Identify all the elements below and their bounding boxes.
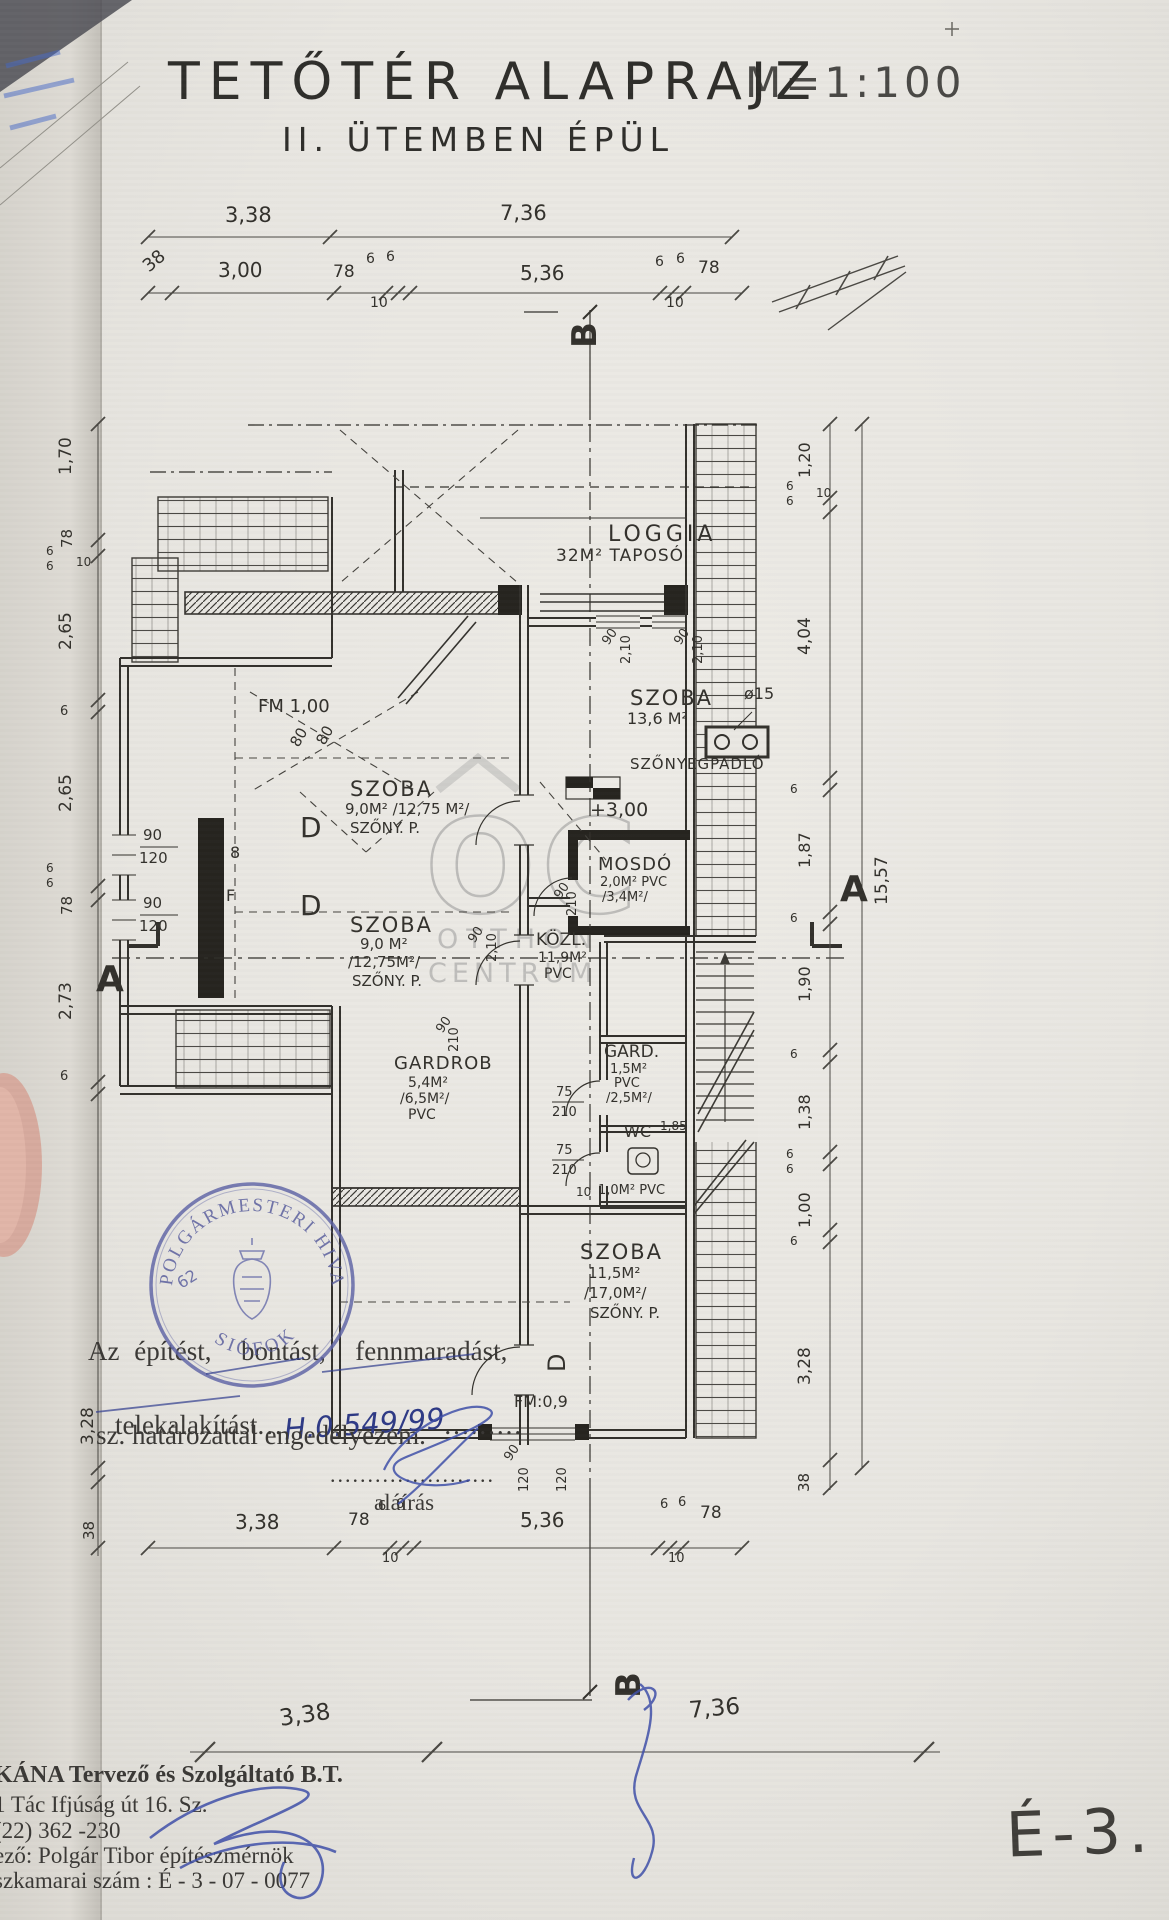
dim-gard-210: 210 [552, 1106, 577, 1119]
dim-left-6d: 6 [46, 862, 54, 874]
dim-left-78a: 78 [60, 529, 75, 548]
approval-line1: Az építést, bontást, fennmaradást, [88, 1336, 507, 1367]
dim-bot1-78b: 78 [700, 1505, 722, 1522]
dim-left-6f: 6 [60, 1070, 68, 1083]
approval-line3: sz. határozattal engedélyezem. [96, 1420, 426, 1451]
dim-top-338: 3,38 [225, 205, 272, 226]
dim-left-265a: 2,65 [58, 612, 75, 650]
dim-bot1-338: 3,38 [235, 1512, 280, 1532]
page-title: TETŐTÉR ALAPRAJZ [168, 52, 820, 112]
signature-label: aláírás [374, 1490, 434, 1516]
dim-left-6c: 6 [60, 705, 68, 718]
dim-left-6e: 6 [46, 877, 54, 889]
label-sym-8: 8 [230, 845, 240, 861]
dim-top2-38: 38 [140, 247, 169, 276]
dim-right-190: 1,90 [797, 966, 813, 1002]
label-door-d3: D [545, 1354, 569, 1372]
dim-top2-536: 5,36 [520, 263, 565, 283]
room-szoba-w1-area: 9,0M² /12,75 M²/ [345, 802, 469, 817]
dim-top2-6c: 6 [655, 255, 664, 269]
room-szoba-ne-floor: SZŐNYEGPADLÓ [630, 757, 765, 772]
label-sym-f: F [226, 888, 235, 904]
room-gard-area: 1,5M² [610, 1063, 647, 1076]
room-gardrob: GARDROB [394, 1055, 493, 1073]
room-mosdo-area2: /3,4M²/ [602, 891, 648, 904]
dim-top2-6d: 6 [676, 252, 685, 266]
page-title-scale: M=1:100 [745, 58, 965, 107]
dim-left-78b: 78 [60, 896, 75, 915]
room-szoba-w2: SZOBA [350, 915, 433, 936]
dim-door-90: 90 [466, 924, 486, 945]
room-kozl: KÖZL. [536, 932, 586, 949]
dim-w-90b: 90 [143, 896, 162, 911]
dim-right-6d: 6 [790, 912, 798, 924]
dim-s-120b: 120 [556, 1467, 569, 1492]
company-designer: ező: Polgár Tibor építészmérnök [0, 1843, 294, 1869]
company-name: KÁNA Tervező és Szolgáltató B.T. [0, 1762, 343, 1789]
dim-left-273: 2,73 [58, 982, 75, 1020]
label-fm100: FM 1,00 [258, 698, 330, 716]
dim-right-328: 3,28 [797, 1347, 814, 1385]
room-szoba-w2-area: 9,0 M² [360, 937, 408, 952]
dim-mosdo-210: 210 [566, 891, 579, 916]
page-subtitle: II. ÜTEMBEN ÉPÜL [282, 120, 674, 159]
dim-gardrob-210: 210 [448, 1027, 461, 1052]
room-kozl-floor: PVC [544, 967, 572, 981]
approval-line2-dots2: ......... [444, 1410, 523, 1440]
dim-win-90a: 90 [600, 626, 620, 647]
dim-bot1-10a: 10 [382, 1552, 399, 1565]
dim-wc-210: 210 [552, 1164, 577, 1177]
room-szoba-w1-floor: SZŐNY. P. [350, 821, 420, 836]
room-loggia: LOGGIA [608, 524, 716, 546]
dim-bot1-6d: 6 [678, 1496, 686, 1509]
dim-bot1-6c: 6 [660, 1498, 668, 1511]
dim-bot1-536: 5,36 [520, 1510, 565, 1530]
dim-top2-10b: 10 [666, 296, 684, 310]
dim-top-736: 7,36 [500, 203, 547, 224]
dim-wc-10: 10 [576, 1186, 591, 1198]
room-gard-floor: PVC [614, 1077, 640, 1090]
label-skylight: ø15 [744, 686, 774, 702]
room-szoba-s: SZOBA [580, 1242, 663, 1263]
marker-a-left: A [96, 962, 124, 998]
label-fm-80b: 80 [314, 723, 337, 747]
dim-right-100: 1,00 [797, 1192, 813, 1228]
dim-top2-78a: 78 [333, 264, 355, 281]
dim-top2-6b: 6 [386, 250, 395, 264]
dim-right-6e: 6 [790, 1048, 798, 1060]
dim-win-210b: 2,10 [692, 635, 705, 664]
dim-bot1-10b: 10 [668, 1552, 685, 1565]
marker-b-top: B [568, 322, 602, 348]
label-fm-80a: 80 [288, 725, 311, 749]
room-szoba-ne-area: 13,6 M² [627, 711, 688, 727]
dim-right-187: 1,87 [797, 832, 813, 868]
label-door-d2: D [300, 892, 322, 920]
dim-top2-6a: 6 [366, 252, 375, 266]
room-loggia-area: 32M² TAPOSÓ [556, 548, 684, 565]
marker-b-bottom: B [612, 1672, 646, 1698]
room-szoba-s-area: 11,5M² [588, 1266, 640, 1281]
sheet-number: É-3. [1005, 1793, 1156, 1871]
room-szoba-ne: SZOBA [630, 688, 713, 709]
dim-right-6h: 6 [790, 1235, 798, 1247]
room-szoba-s-area2: /17,0M²/ [584, 1286, 646, 1301]
dim-gard-75: 75 [556, 1086, 573, 1099]
room-wc-area: 1,0M² PVC [598, 1184, 665, 1197]
dim-left-265b: 2,65 [58, 774, 75, 812]
dim-right-1557: 15,57 [874, 856, 891, 905]
room-kozl-area: 11,9M² [538, 951, 587, 965]
dim-top2-10a: 10 [370, 296, 388, 310]
scanned-floor-plan-page: OC OTTHON CENTRUM [0, 0, 1169, 1920]
room-mosdo: MOSDÓ [598, 856, 672, 874]
company-address: 1 Tác Ifjúság út 16. Sz. [0, 1792, 208, 1818]
dim-right-6b: 6 [786, 495, 794, 507]
room-szoba-w2-area2: /12,75M²/ [348, 955, 420, 970]
dim-right-6c: 6 [790, 783, 798, 795]
dim-right-6f: 6 [786, 1148, 794, 1160]
dim-right-6g: 6 [786, 1163, 794, 1175]
room-wc: WC [624, 1124, 651, 1140]
room-gard-area2: /2,5M²/ [606, 1092, 652, 1105]
room-gard: GARD. [604, 1044, 659, 1061]
dim-left-10: 10 [76, 556, 91, 568]
dim-top2-300: 3,00 [218, 260, 263, 280]
annotation-layer: 3,387,36383,007866105,36667810B1,7078661… [0, 0, 1169, 1920]
dim-door-210: 2,10 [486, 933, 499, 962]
room-gardrob-floor: PVC [408, 1108, 436, 1122]
dim-right-38: 38 [797, 1473, 812, 1492]
room-szoba-w1: SZOBA [350, 779, 433, 800]
dim-right-404: 4,04 [797, 617, 814, 655]
dim-win-210a: 2,10 [620, 635, 633, 664]
marker-a-right: A [840, 872, 868, 908]
dim-w-90a: 90 [143, 828, 162, 843]
dim-wc-75: 75 [556, 1144, 573, 1157]
room-szoba-s-floor: SZŐNY. P. [590, 1306, 660, 1321]
dim-left-6a: 6 [46, 545, 54, 557]
dim-top2-78b: 78 [698, 260, 720, 277]
room-gardrob-area2: /6,5M²/ [400, 1092, 449, 1106]
label-door-d1: D [300, 814, 322, 842]
dim-w-120a: 120 [139, 851, 168, 866]
dim-win-90b: 90 [672, 626, 692, 647]
dim-right-120: 1,20 [797, 442, 813, 478]
dim-left-170: 1,70 [58, 437, 75, 475]
room-gardrob-area: 5,4M² [408, 1076, 448, 1090]
room-wc-h: 1,85 [660, 1120, 687, 1132]
dim-left-38: 38 [82, 1521, 97, 1540]
dim-right-10: 10 [816, 487, 831, 499]
room-mosdo-area: 2,0M² PVC [600, 876, 667, 889]
dim-bot2-338: 3,38 [278, 1701, 332, 1731]
signature-dotted-line: ...................... [330, 1462, 495, 1488]
dim-left-6b: 6 [46, 560, 54, 572]
dim-w-120b: 120 [139, 919, 168, 934]
dim-bot2-736: 7,36 [688, 1696, 741, 1723]
dim-bot1-78a: 78 [348, 1512, 370, 1529]
dim-right-6a: 6 [786, 480, 794, 492]
company-chamber-number: szkamarai szám : É - 3 - 07 - 0077 [0, 1868, 310, 1894]
room-szoba-w2-floor: SZŐNY. P. [352, 974, 422, 989]
company-phone: (22) 362 -230 [0, 1818, 120, 1844]
label-level: +3,00 [590, 801, 648, 820]
dim-right-138: 1,38 [797, 1094, 813, 1130]
